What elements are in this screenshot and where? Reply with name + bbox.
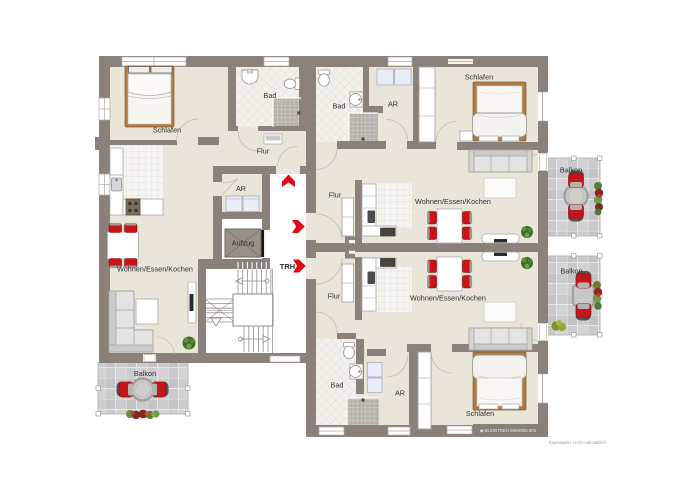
svg-text:Wohnen/Essen/Kochen: Wohnen/Essen/Kochen	[415, 197, 491, 206]
svg-text:Schlafen: Schlafen	[466, 409, 494, 418]
svg-text:Wohnen/Essen/Kochen: Wohnen/Essen/Kochen	[410, 294, 486, 303]
svg-text:Bad: Bad	[331, 381, 344, 390]
svg-text:Wohnen/Essen/Kochen: Wohnen/Essen/Kochen	[117, 265, 193, 274]
svg-text:Schlafen: Schlafen	[465, 73, 493, 82]
svg-text:Flur: Flur	[328, 292, 341, 301]
svg-text:Balkon: Balkon	[560, 166, 582, 175]
svg-text:Flur: Flur	[257, 147, 270, 156]
svg-text:Balkon: Balkon	[560, 267, 582, 276]
svg-text:Exposeplan, nicht maßstäblich: Exposeplan, nicht maßstäblich	[549, 440, 606, 445]
svg-text:Aufzug: Aufzug	[232, 239, 254, 248]
svg-text:Schlafen: Schlafen	[153, 126, 181, 135]
svg-text:Balkon: Balkon	[134, 369, 156, 378]
svg-text:Bad: Bad	[264, 91, 277, 100]
svg-text:TRH: TRH	[280, 262, 295, 271]
svg-text:Bad: Bad	[333, 102, 346, 111]
svg-text:AR: AR	[395, 389, 405, 398]
svg-text:AR: AR	[236, 184, 246, 193]
svg-text:AR: AR	[388, 100, 398, 109]
svg-text:◆ BLEIBTREU IMMOBILIEN: ◆ BLEIBTREU IMMOBILIEN	[480, 428, 536, 433]
svg-text:Flur: Flur	[329, 191, 342, 200]
